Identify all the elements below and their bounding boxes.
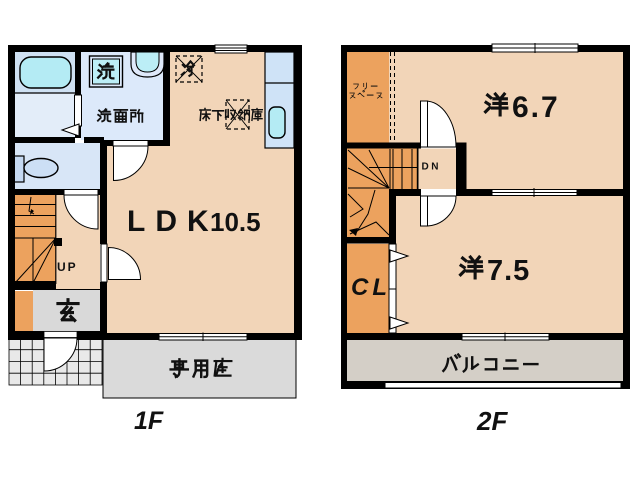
svg-text:CL: CL — [351, 274, 391, 301]
svg-text:LDK: LDK — [127, 205, 219, 238]
svg-text:2F: 2F — [476, 406, 508, 436]
svg-text:UP: UP — [57, 260, 78, 274]
svg-text:7.5: 7.5 — [487, 255, 530, 287]
svg-text:10.5: 10.5 — [210, 207, 261, 237]
svg-text:6.7: 6.7 — [512, 91, 560, 124]
svg-text:DN: DN — [422, 162, 441, 173]
svg-text:1F: 1F — [134, 407, 164, 435]
